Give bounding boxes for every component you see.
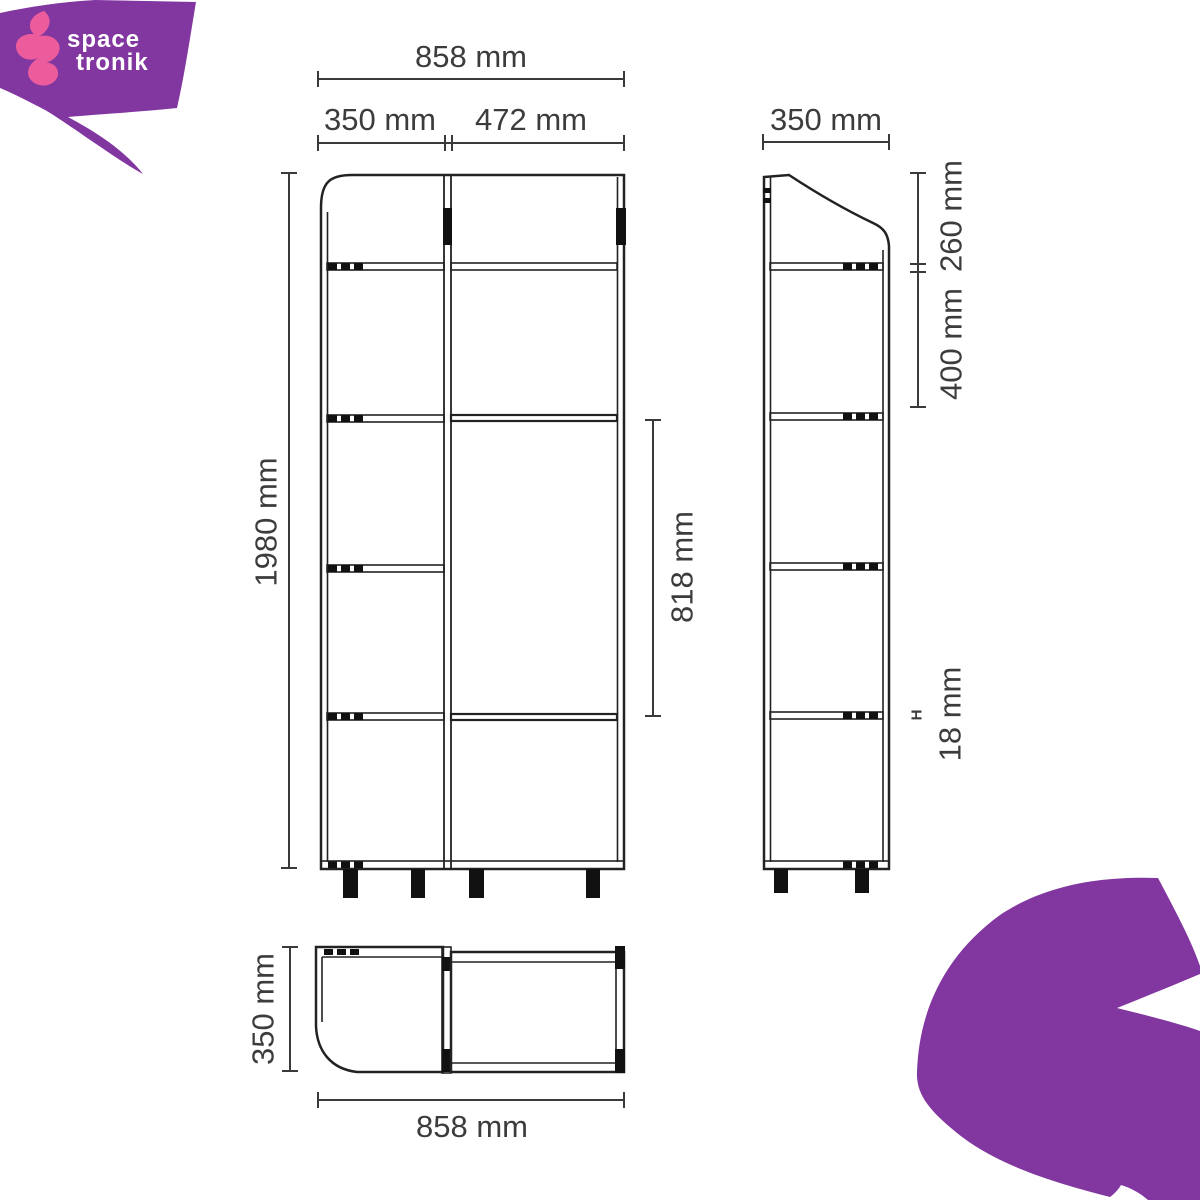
top-right-section-outline (451, 952, 624, 1072)
brand-name-line2: tronik (76, 49, 149, 76)
front-outline (321, 175, 624, 869)
purple-blob-shape-2 (917, 878, 1200, 1200)
label-front-total-width: 858 mm (415, 39, 527, 74)
top-peg-marks (324, 949, 359, 955)
label-top-total-width: 858 mm (416, 1109, 528, 1144)
label-side-thickness-symbol: H (909, 710, 926, 721)
technical-drawing-page: space tronik (0, 0, 1200, 1200)
brand-blob-top-left: space tronik (0, 0, 196, 174)
top-right-hinge-bottom (615, 1049, 625, 1073)
top-left-section-outline (316, 947, 443, 1072)
label-front-total-height: 1980 mm (249, 457, 284, 586)
brand-blob-bottom-right (917, 878, 1200, 1200)
label-side-middle-section: 400 mm (934, 288, 969, 400)
label-front-door-height: 818 mm (665, 511, 700, 623)
label-side-shelf-thickness: 18 mm (933, 667, 968, 762)
top-divider-hinge-top (442, 957, 451, 971)
label-top-depth: 350 mm (246, 953, 281, 1065)
front-feet (343, 869, 600, 898)
top-right-hinge-top (615, 946, 625, 969)
label-front-right-width: 472 mm (475, 102, 587, 137)
side-feet (774, 869, 869, 893)
hinge-block-center (443, 208, 452, 245)
side-outline (764, 175, 889, 869)
label-front-left-width: 350 mm (324, 102, 436, 137)
top-view (316, 946, 625, 1073)
label-side-top-section: 260 mm (934, 160, 969, 272)
side-view (763, 175, 889, 893)
top-divider-hinge-bottom (442, 1049, 451, 1072)
hinge-block-right (616, 208, 626, 245)
label-side-depth: 350 mm (770, 102, 882, 137)
front-view (321, 175, 626, 898)
